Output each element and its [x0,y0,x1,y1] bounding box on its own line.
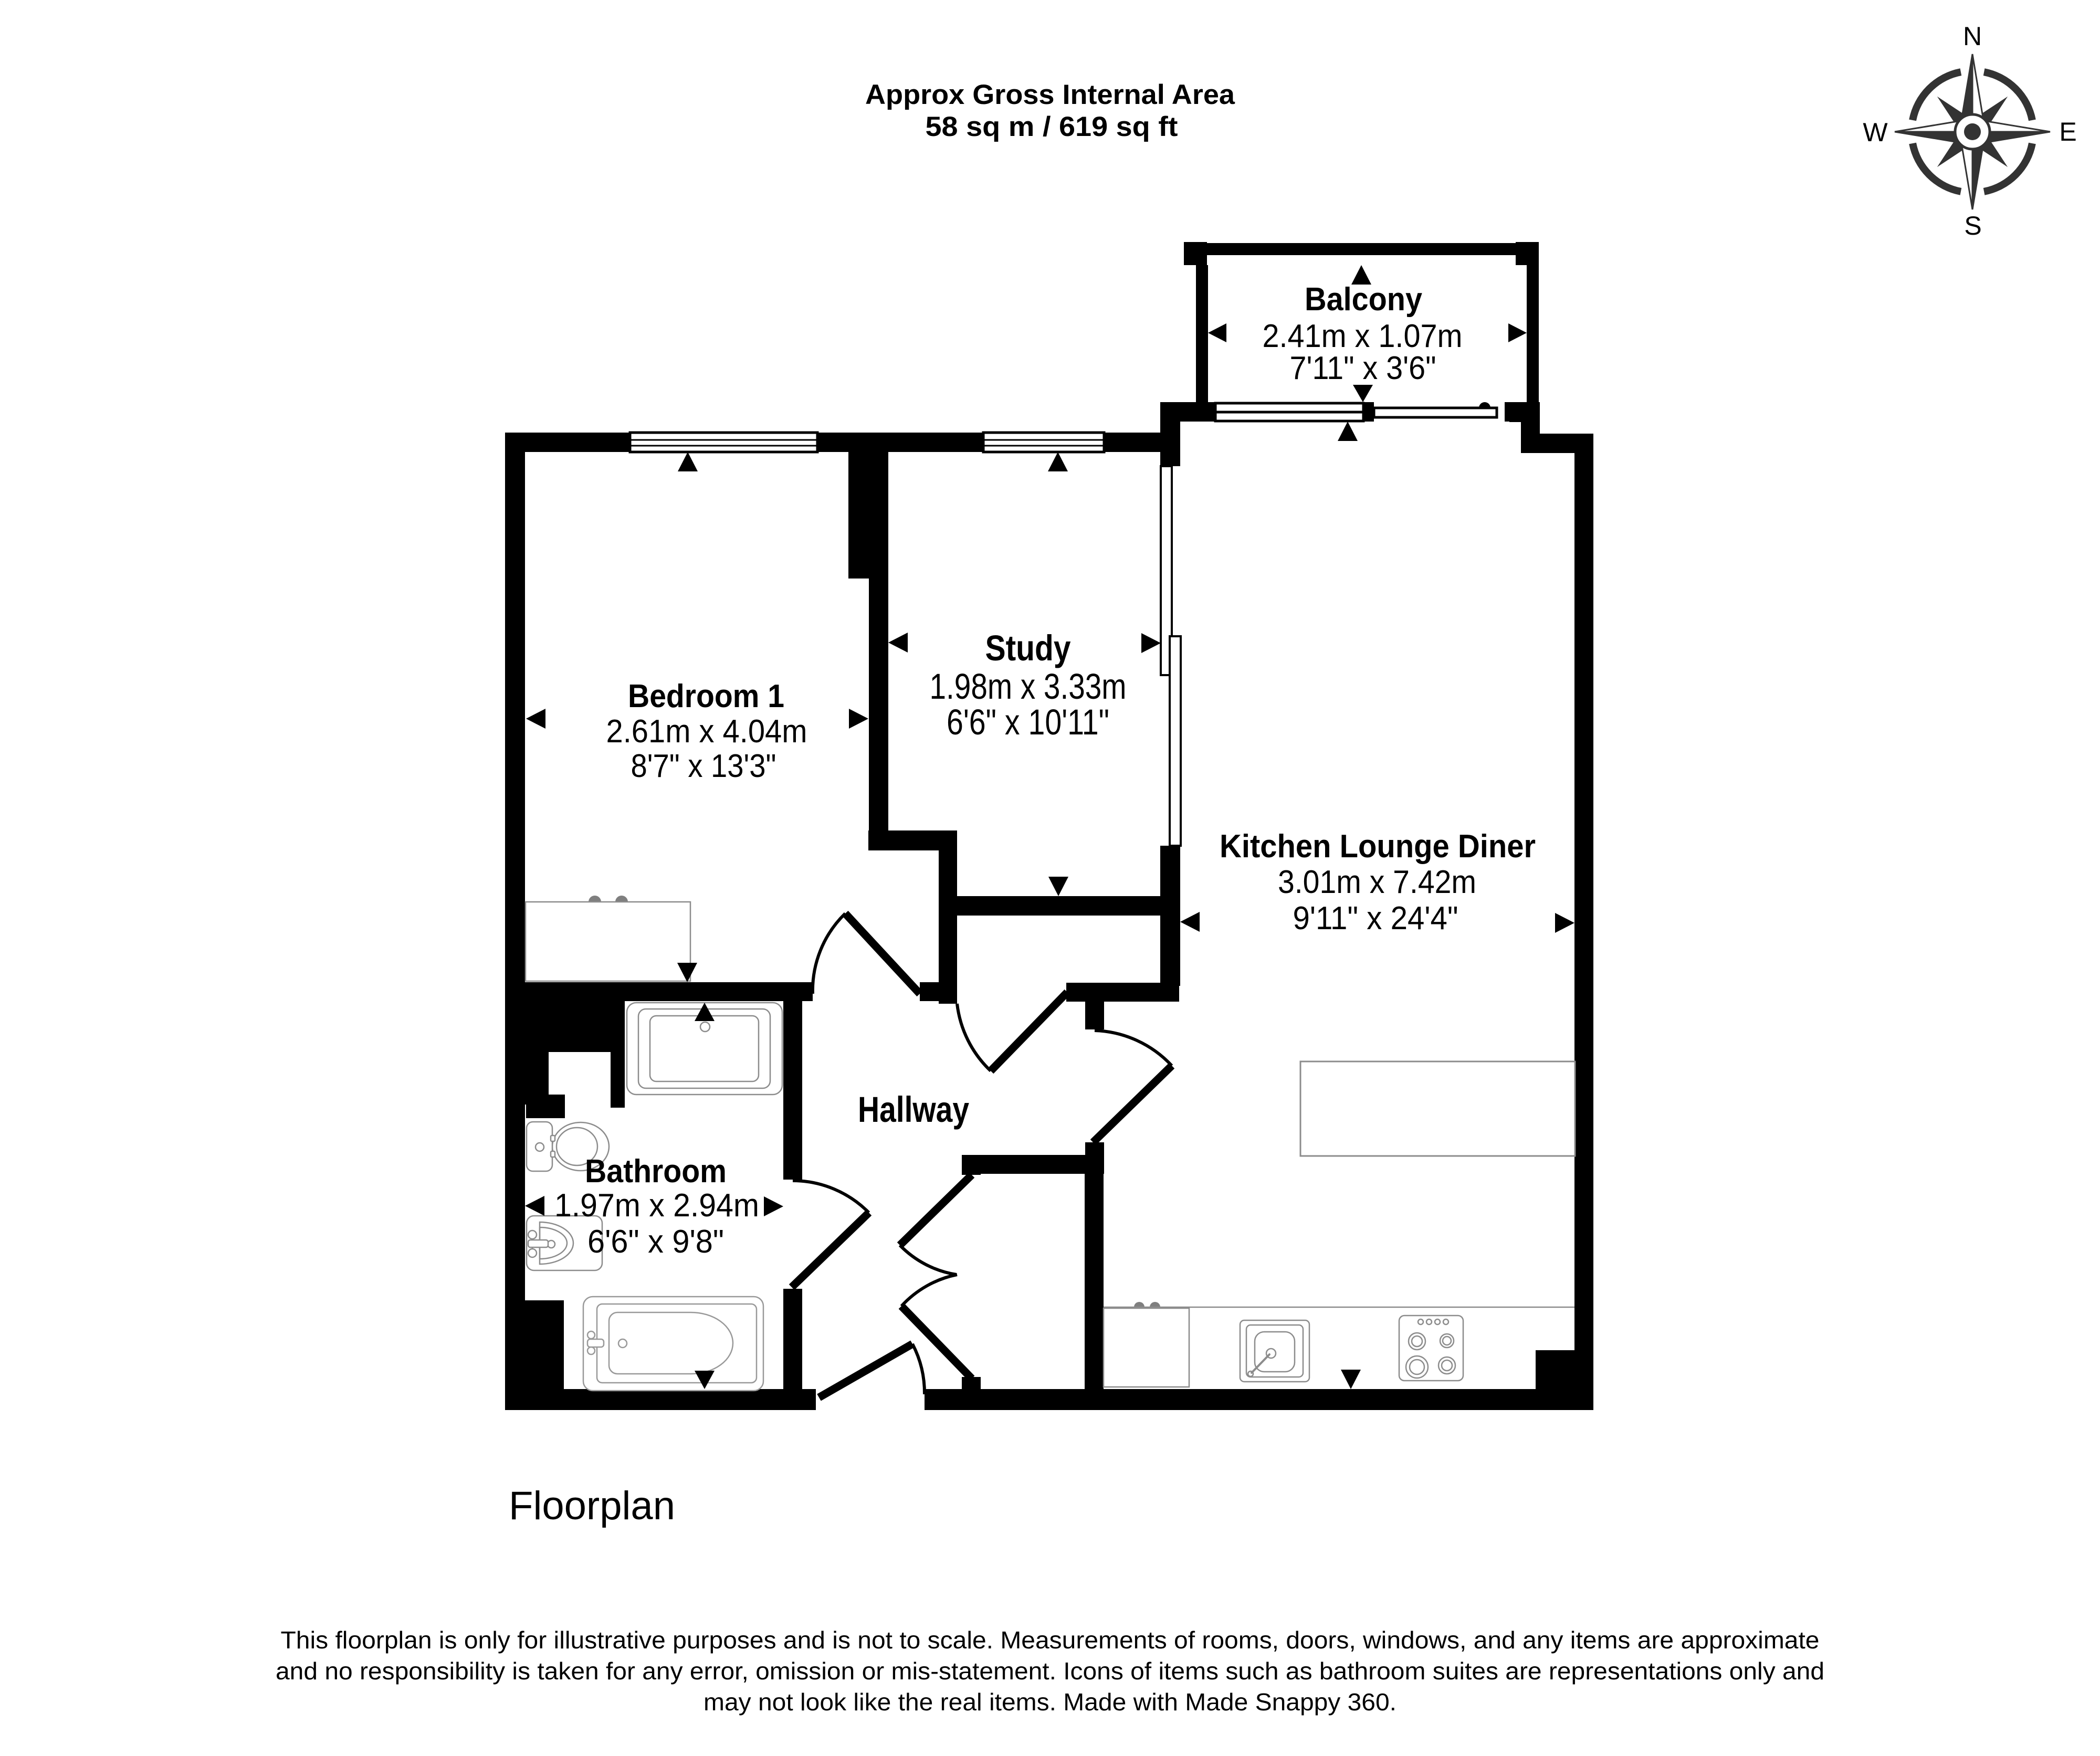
svg-text:6'6" x 10'11": 6'6" x 10'11" [947,702,1109,742]
svg-text:Hallway: Hallway [858,1089,969,1130]
svg-text:8'7" x 13'3": 8'7" x 13'3" [631,748,776,784]
svg-text:58 sq m / 619 sq ft: 58 sq m / 619 sq ft [926,111,1178,142]
svg-text:and no responsibility is taken: and no responsibility is taken for any e… [276,1657,1824,1685]
svg-text:7'11" x 3'6": 7'11" x 3'6" [1290,350,1436,386]
svg-text:Balcony: Balcony [1305,281,1422,318]
svg-text:9'11" x 24'4": 9'11" x 24'4" [1293,900,1458,937]
svg-text:This floorplan is only for ill: This floorplan is only for illustrative … [281,1626,1820,1654]
svg-text:6'6" x 9'8": 6'6" x 9'8" [587,1224,724,1260]
svg-text:W: W [1863,118,1888,147]
svg-text:Bathroom: Bathroom [585,1153,727,1190]
svg-text:Approx Gross Internal Area: Approx Gross Internal Area [865,79,1235,110]
svg-text:E: E [2059,117,2076,146]
svg-text:1.98m x 3.33m: 1.98m x 3.33m [930,666,1127,707]
svg-text:2.41m x 1.07m: 2.41m x 1.07m [1263,318,1463,354]
svg-text:3.01m x 7.42m: 3.01m x 7.42m [1278,864,1476,900]
svg-text:Kitchen Lounge Diner: Kitchen Lounge Diner [1220,828,1536,865]
svg-text:S: S [1964,211,1981,240]
svg-text:may not look like the real ite: may not look like the real items. Made w… [703,1688,1396,1716]
svg-text:Bedroom 1: Bedroom 1 [628,678,784,714]
svg-text:N: N [1963,22,1982,51]
svg-text:Floorplan: Floorplan [509,1484,675,1528]
svg-text:2.61m x 4.04m: 2.61m x 4.04m [606,713,807,750]
svg-text:1.97m x 2.94m: 1.97m x 2.94m [554,1187,759,1224]
svg-text:Study: Study [985,628,1071,668]
